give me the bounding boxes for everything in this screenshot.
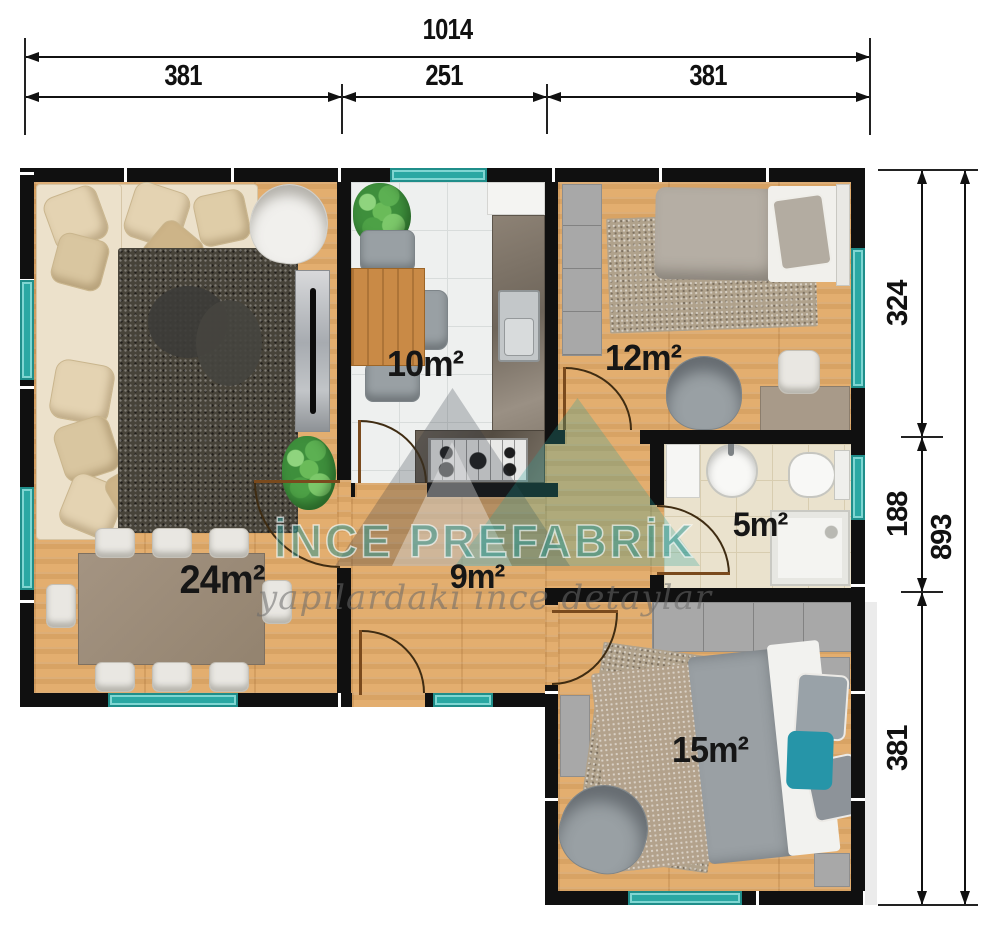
dim-extension-line [901, 436, 943, 438]
accent-pillow [786, 731, 834, 791]
window-dining [108, 693, 238, 707]
kitchen-upper-cabinet [487, 182, 545, 215]
dining-chair [152, 528, 192, 558]
window-living-1 [20, 280, 34, 380]
dim-line-top-total [25, 56, 870, 58]
dim-top-seg3: 381 [667, 62, 749, 91]
dim-extension-line [878, 169, 978, 171]
bedroom2-door-leaf [552, 610, 618, 613]
toilet [788, 452, 836, 498]
bed-pillow [771, 193, 833, 272]
dim-arrow [342, 92, 356, 102]
wall-kitchen-bedroom1 [545, 182, 558, 444]
headboard [836, 184, 850, 286]
window-living-2 [20, 487, 34, 590]
window-bedroom1 [851, 248, 865, 388]
window-kitchen [390, 168, 487, 182]
dim-arrow [917, 423, 927, 437]
dim-arrow [917, 592, 927, 606]
dim-arrow [547, 92, 561, 102]
wardrobe [562, 184, 602, 356]
floor-plan: İNCE PREFABRİK yapılardaki ince detaylar… [0, 0, 989, 946]
kitchen-chair [360, 230, 415, 272]
single-bed-duvet [654, 187, 781, 281]
dim-extension-line [24, 38, 26, 135]
dim-top-seg1: 381 [142, 62, 224, 91]
wall-living-kitchen [337, 182, 351, 693]
entrance-door-leaf [359, 630, 362, 695]
living-room-area-label: 24m² [160, 560, 284, 600]
dim-right-total: 893 [928, 477, 957, 597]
sofa-pillow [47, 357, 117, 427]
dim-line-top-segments [25, 96, 870, 98]
dim-extension-line [341, 84, 343, 134]
dining-chair [209, 528, 249, 558]
bathroom-vanity [666, 444, 700, 498]
dim-top-seg2: 251 [403, 62, 485, 91]
dim-arrow [856, 92, 870, 102]
wall-left [20, 168, 34, 707]
dining-chair [152, 662, 192, 692]
dim-arrow [917, 578, 927, 592]
dining-chair [46, 584, 76, 628]
dim-line-right-total [964, 170, 966, 905]
door-opening [355, 483, 427, 497]
tv [310, 288, 316, 414]
sofa-pillow [191, 187, 253, 249]
dim-arrow [856, 52, 870, 62]
dim-extension-line [869, 38, 871, 135]
bedroom2-area-label: 15m² [648, 732, 772, 768]
dim-arrow [533, 92, 547, 102]
living-room-door-leaf [254, 480, 340, 483]
dim-extension-line [878, 904, 978, 906]
door-opening [565, 430, 640, 444]
kitchen-sink-bowl [504, 318, 534, 356]
bedroom1-door-leaf [563, 367, 566, 430]
dining-chair [95, 662, 135, 692]
dim-right-seg1: 324 [884, 243, 913, 363]
dim-arrow [917, 170, 927, 184]
dim-arrow [328, 92, 342, 102]
bathroom-area-label: 5m² [703, 508, 817, 542]
corridor-floor [545, 444, 650, 588]
dim-right-seg2: 188 [884, 454, 913, 574]
nightstand [814, 853, 850, 887]
dim-line-right-segments [921, 170, 923, 905]
bedroom1-area-label: 12m² [581, 340, 705, 376]
kitchen-door-leaf [358, 420, 361, 483]
dim-top-total: 1014 [392, 16, 503, 45]
dim-arrow [960, 170, 970, 184]
window-bedroom2 [628, 891, 742, 905]
dim-arrow [960, 891, 970, 905]
hallway-area-label: 9m² [420, 560, 534, 594]
dim-arrow [25, 52, 39, 62]
kitchen-area-label: 10m² [363, 346, 487, 382]
dim-arrow [917, 891, 927, 905]
dim-arrow [917, 437, 927, 451]
coffee-table [196, 300, 262, 386]
toilet-tank [834, 450, 850, 500]
building-shadow [865, 602, 877, 905]
bathroom-door-leaf [657, 572, 730, 575]
dining-chair [209, 662, 249, 692]
desk-chair [778, 350, 820, 394]
window-bathroom [851, 455, 865, 520]
dining-chair [95, 528, 135, 558]
door-opening [352, 693, 425, 707]
window-hall [433, 693, 493, 707]
dim-extension-line [546, 84, 548, 134]
dim-arrow [25, 92, 39, 102]
wall-bathroom-bottom [545, 588, 865, 602]
dim-right-seg3: 381 [884, 688, 913, 808]
stove [428, 438, 528, 482]
